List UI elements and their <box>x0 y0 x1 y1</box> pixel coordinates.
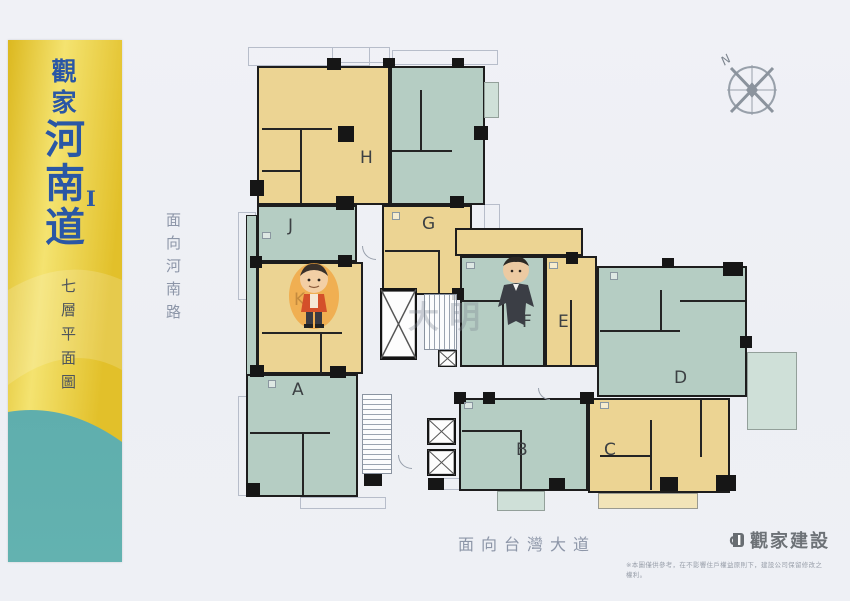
balcony-B <box>497 491 545 511</box>
column <box>716 475 736 491</box>
wall-segment <box>570 300 572 365</box>
stairs <box>362 394 392 474</box>
column <box>723 262 743 276</box>
unit-block-northeast <box>390 66 485 205</box>
side-strip <box>246 215 257 375</box>
column <box>327 58 341 70</box>
disclaimer-text: ※本圖僅供參考，在不影響住戶權益原則下，建設公司保留修改之權利。 <box>626 559 826 579</box>
fixture <box>268 380 276 388</box>
column <box>450 196 464 208</box>
wall-segment <box>520 430 522 490</box>
balcony-northeast <box>484 82 499 118</box>
fixture <box>392 212 400 220</box>
unit-block-H <box>257 66 390 205</box>
wall-segment <box>262 170 302 172</box>
fixture <box>549 262 558 269</box>
fixture <box>466 262 475 269</box>
builder-logo-text: 觀家建設 <box>750 527 830 553</box>
wall-segment <box>385 250 440 252</box>
wall-segment <box>462 430 522 432</box>
column <box>338 126 354 142</box>
column <box>250 365 264 377</box>
door-arc <box>398 455 412 469</box>
unit-label-B: B <box>516 440 529 460</box>
mascot-boy-illustration <box>286 258 342 332</box>
compass-icon: N <box>712 48 788 124</box>
unit-label-C: C <box>604 440 617 460</box>
wall-segment <box>302 432 304 495</box>
street-caption-henan-road: 面向河南路 <box>163 212 184 327</box>
watermark-text: 大明 <box>408 292 490 337</box>
unit-label-J: J <box>288 216 294 236</box>
column <box>474 126 488 140</box>
elevator-shaft <box>438 350 457 367</box>
unit-label-E: E <box>558 312 570 332</box>
column <box>330 366 346 378</box>
column <box>452 58 464 68</box>
wall-segment <box>300 128 302 203</box>
entry-band <box>455 228 583 256</box>
elevator-shaft <box>427 449 456 476</box>
fixture <box>600 402 609 409</box>
fixture <box>610 272 618 280</box>
column <box>549 478 565 490</box>
fixture <box>464 402 473 409</box>
column <box>580 392 594 404</box>
brand-name-top: 觀家 <box>44 58 80 120</box>
brand-name-main: 河南道 <box>32 118 90 250</box>
unit-block-J <box>257 205 357 262</box>
column <box>566 252 578 264</box>
column <box>740 336 752 348</box>
roofline <box>392 50 498 65</box>
column <box>336 196 354 210</box>
wall-segment <box>680 300 745 302</box>
wall-segment <box>392 150 452 152</box>
wall-segment <box>600 330 680 332</box>
fixture <box>262 232 271 239</box>
elevator-shaft <box>427 418 456 445</box>
unit-label-D: D <box>674 368 688 388</box>
brand-banner: 觀家 河南道 I 七層平面圖 <box>8 40 122 562</box>
brand-name-suffix: I <box>86 186 96 211</box>
mascot-man-illustration <box>492 255 540 333</box>
column <box>246 483 260 497</box>
wall-segment <box>320 332 322 374</box>
column <box>250 256 262 268</box>
street-caption-taiwan-blvd: 面向台灣大道 <box>458 531 596 555</box>
wall-segment <box>420 90 422 150</box>
column <box>364 474 382 486</box>
column <box>662 258 674 268</box>
wall-segment <box>262 332 342 334</box>
column <box>660 477 678 491</box>
balcony-C <box>598 493 698 509</box>
roofline <box>300 497 386 509</box>
door-arc <box>362 246 376 260</box>
wall-segment <box>700 400 702 457</box>
wall-segment <box>262 128 332 130</box>
wall-segment <box>660 290 662 332</box>
column <box>483 392 495 404</box>
balcony-D <box>747 352 797 430</box>
column <box>428 478 444 490</box>
wall-segment <box>250 432 330 434</box>
unit-label-G: G <box>422 214 436 234</box>
wall-segment <box>438 250 440 293</box>
column <box>250 180 264 196</box>
column <box>383 58 395 68</box>
builder-logo-icon <box>726 529 748 551</box>
unit-label-A: A <box>292 380 305 400</box>
unit-label-H: H <box>360 148 374 168</box>
floor-plan-page: 觀家 河南道 I 七層平面圖 面向河南路 面向台灣大道 N <box>0 0 850 601</box>
compass-north-label: N <box>718 52 733 69</box>
floor-plan-title: 七層平面圖 <box>58 278 79 398</box>
